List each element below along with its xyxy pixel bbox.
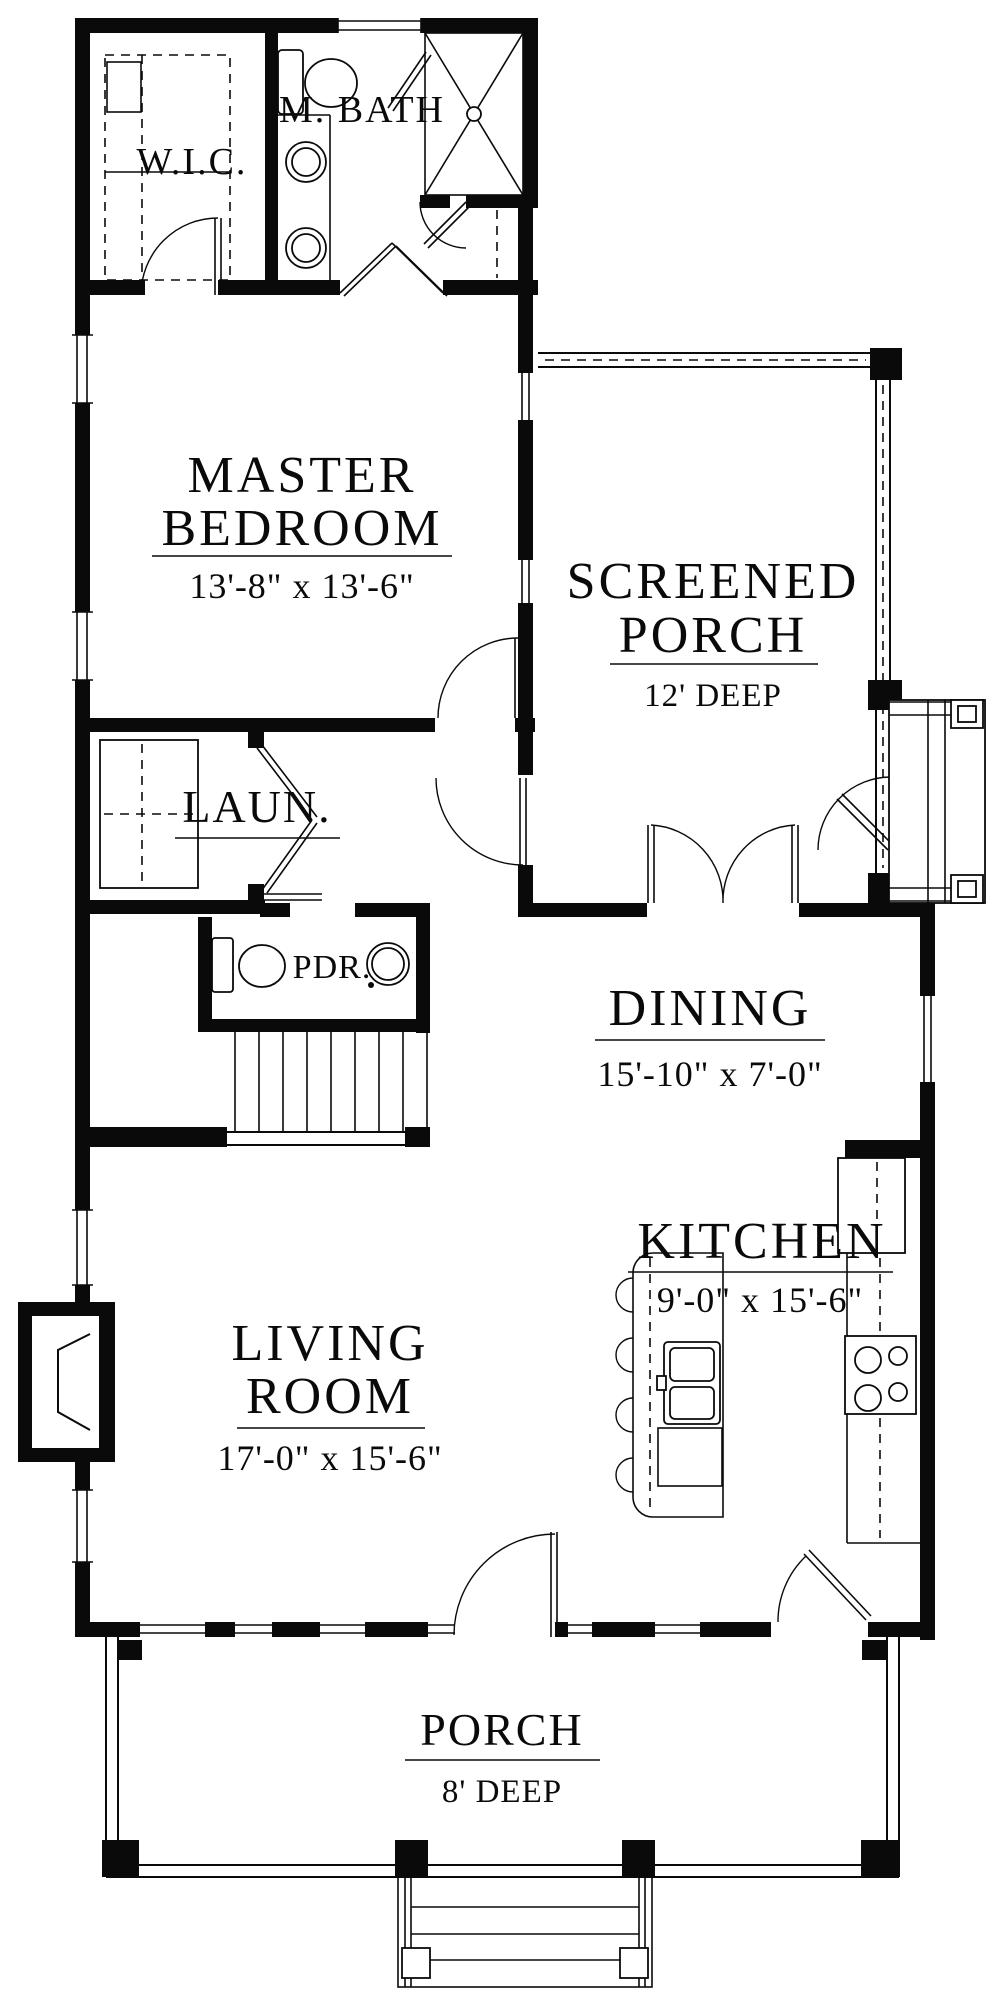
round-sink-icon bbox=[367, 943, 409, 988]
bedroom-door bbox=[438, 638, 521, 718]
living-room-label-1: LIVING bbox=[231, 1315, 428, 1372]
floor-plan-drawing: W.I.C. M. BATH MASTER BEDROOM 13'-8" x 1… bbox=[0, 0, 1004, 2008]
vanity-double-sink bbox=[278, 115, 330, 280]
window-dining-right bbox=[920, 996, 935, 1082]
window-living-left-1 bbox=[72, 1210, 93, 1285]
island-stools bbox=[616, 1278, 633, 1492]
window-bedroom-left-1 bbox=[72, 335, 93, 403]
dining-dims: 15'-10" x 7'-0" bbox=[597, 1054, 822, 1094]
bath-fixtures bbox=[278, 33, 523, 280]
screened-porch-dims: 12' DEEP bbox=[644, 678, 782, 714]
master-bedroom-dims: 13'-8" x 13'-6" bbox=[189, 566, 414, 606]
laundry-label: LAUN. bbox=[182, 781, 331, 832]
master-bedroom-label-1: MASTER bbox=[188, 447, 417, 504]
linen-door bbox=[420, 202, 497, 278]
floor-plan-page: W.I.C. M. BATH MASTER BEDROOM 13'-8" x 1… bbox=[0, 0, 1004, 2008]
window-bedroom-right-1 bbox=[518, 373, 533, 420]
living-room-dims: 17'-0" x 15'-6" bbox=[217, 1438, 442, 1478]
front-door bbox=[454, 1532, 557, 1637]
powder-label: PDR. bbox=[293, 949, 372, 986]
screened-porch-label-2: PORCH bbox=[619, 607, 807, 664]
kitchen-dims: 9'-0" x 15'-6" bbox=[657, 1280, 863, 1320]
island-sink-icon bbox=[657, 1342, 720, 1424]
front-steps bbox=[398, 1877, 652, 1987]
window-top-bath bbox=[338, 18, 421, 33]
island-cabinet bbox=[658, 1428, 722, 1486]
window-hall-right bbox=[518, 560, 533, 603]
kitchen-rear-door bbox=[778, 1550, 871, 1622]
toilet-icon bbox=[212, 938, 285, 992]
staircase bbox=[227, 1032, 430, 1145]
window-bedroom-left-2 bbox=[72, 612, 93, 680]
dining-label: DINING bbox=[609, 980, 812, 1037]
porch-dims: 8' DEEP bbox=[442, 1774, 562, 1810]
wic-label: W.I.C. bbox=[137, 141, 248, 183]
mbath-label: M. BATH bbox=[279, 89, 445, 131]
front-porch-structure bbox=[102, 1637, 899, 1987]
hall-porch-door bbox=[436, 778, 526, 865]
porch-label: PORCH bbox=[420, 1704, 583, 1755]
master-bedroom-label-2: BEDROOM bbox=[161, 500, 442, 557]
screen-door bbox=[818, 777, 893, 850]
fireplace-icon bbox=[18, 1302, 115, 1462]
wic-door bbox=[141, 218, 221, 295]
bath-bifold-door bbox=[340, 243, 447, 296]
kitchen-label: KITCHEN bbox=[637, 1213, 886, 1270]
range-icon bbox=[845, 1336, 916, 1414]
screened-porch-label-1: SCREENED bbox=[567, 553, 860, 610]
dining-french-doors bbox=[648, 825, 798, 903]
porch-side-steps bbox=[889, 700, 985, 903]
living-room-label-2: ROOM bbox=[246, 1368, 414, 1425]
window-living-left-2 bbox=[72, 1490, 93, 1562]
